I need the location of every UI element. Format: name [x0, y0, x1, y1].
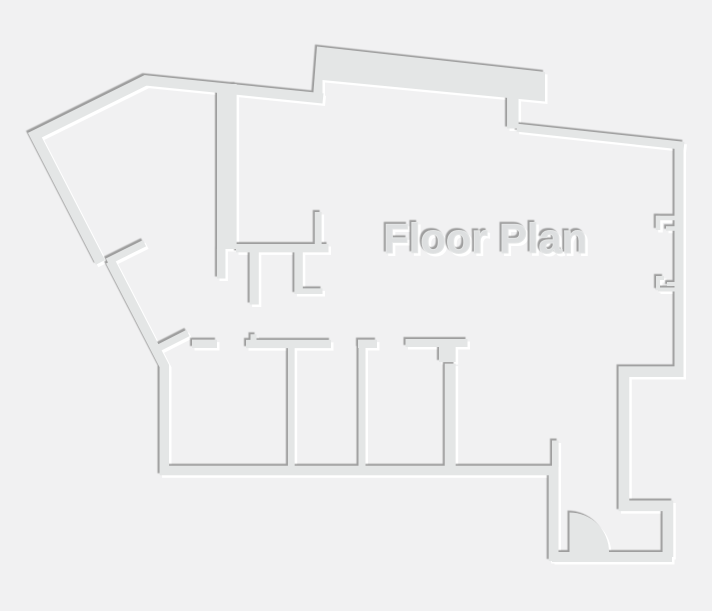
svg-text:Floor Plan: Floor Plan: [384, 215, 588, 262]
